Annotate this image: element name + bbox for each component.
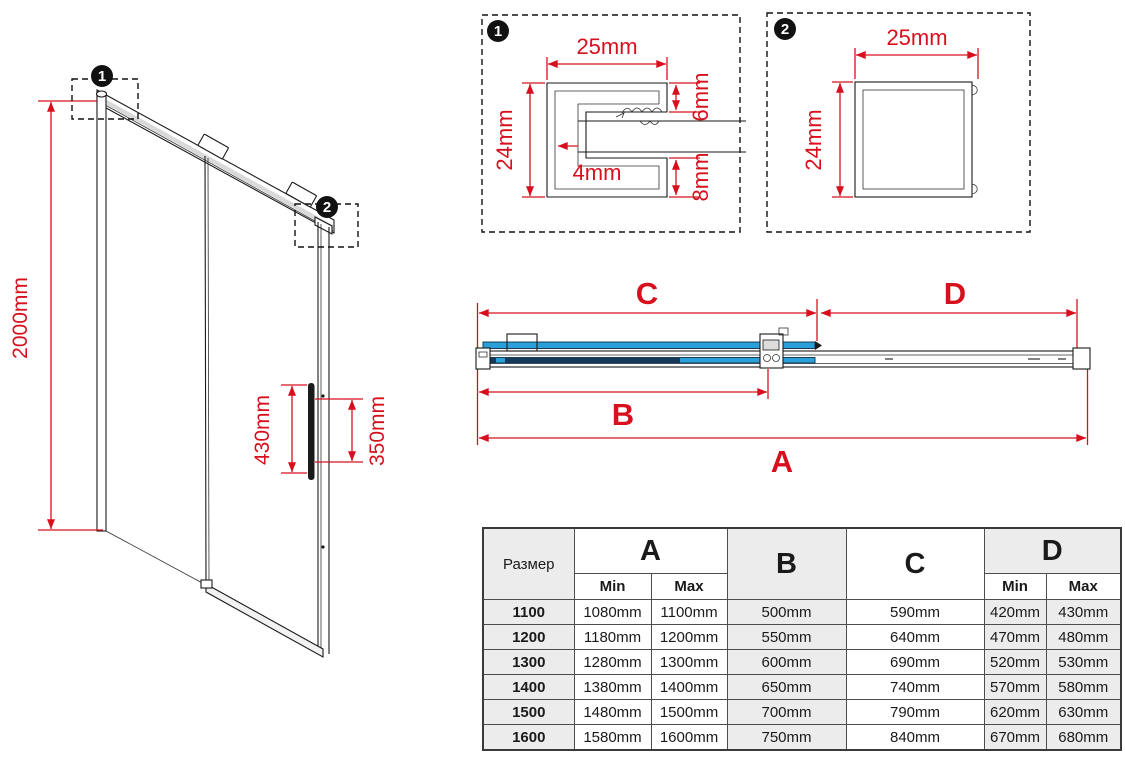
rail-plan-view: C D B	[476, 276, 1090, 479]
table-row: 1400 1380mm 1400mm 650mm 740mm 570mm 580…	[483, 675, 1121, 700]
table-cell: 1380mm	[574, 675, 651, 700]
table-cell: 1600mm	[651, 725, 727, 751]
table-cell: 470mm	[984, 625, 1046, 650]
rail-end-cap-left	[476, 348, 490, 369]
handle-holes-label: 350mm	[366, 396, 389, 466]
table-cell: 530mm	[1046, 650, 1121, 675]
table-cell: 640mm	[846, 625, 984, 650]
glass-gasket	[616, 108, 662, 125]
table-header-a-min: Min	[574, 574, 651, 600]
table-header-a: A	[574, 528, 727, 574]
table-cell: 700mm	[727, 700, 846, 725]
table-cell: 420mm	[984, 600, 1046, 625]
table-cell: 1500mm	[651, 700, 727, 725]
table-header-b: B	[727, 528, 846, 600]
callout-1-number: 1	[98, 68, 106, 85]
table-cell: 430mm	[1046, 600, 1121, 625]
dim-handle-length: 430mm	[251, 385, 307, 473]
table-row: 1500 1480mm 1500mm 700mm 790mm 620mm 630…	[483, 700, 1121, 725]
table-cell: 500mm	[727, 600, 846, 625]
table-cell: 1180mm	[574, 625, 651, 650]
table-cell: 750mm	[727, 725, 846, 751]
table-cell: 1500	[483, 700, 574, 725]
table-header-size: Размер	[483, 528, 574, 600]
plan-dim-c: C	[636, 276, 658, 311]
table-cell: 600mm	[727, 650, 846, 675]
table-cell: 740mm	[846, 675, 984, 700]
table-cell: 1200	[483, 625, 574, 650]
dim-d2-width: 25mm	[855, 25, 978, 79]
dim-d1-height: 24mm	[492, 83, 545, 197]
detail-1-badge: 1	[494, 23, 502, 40]
table-cell: 1200mm	[651, 625, 727, 650]
table-cell: 650mm	[727, 675, 846, 700]
d1-top-lip-label: 6mm	[688, 73, 713, 122]
plan-dim-d: D	[944, 276, 966, 311]
table-cell: 1300mm	[651, 650, 727, 675]
table-cell: 670mm	[984, 725, 1046, 751]
left-stile	[97, 95, 106, 531]
table-header-a-max: Max	[651, 574, 727, 600]
door-height-label: 2000mm	[9, 277, 32, 359]
table-cell: 550mm	[727, 625, 846, 650]
door-handle	[308, 383, 315, 480]
table-cell: 480mm	[1046, 625, 1121, 650]
plan-dim-a: A	[771, 444, 793, 479]
table-cell: 1400mm	[651, 675, 727, 700]
dim-d1-width: 25mm	[547, 34, 667, 80]
callout-2-number: 2	[323, 199, 331, 216]
handle-length-label: 430mm	[251, 395, 274, 465]
table-header-d-min: Min	[984, 574, 1046, 600]
table-cell: 1400	[483, 675, 574, 700]
d1-wall-label: 4mm	[573, 160, 622, 185]
dim-d1-bottom-lip: 8mm	[669, 153, 713, 202]
door-isometric-drawing: 2000mm 430mm 350mm 1 2	[9, 65, 389, 657]
table-cell: 1100	[483, 600, 574, 625]
table-header-d-max: Max	[1046, 574, 1121, 600]
detail-1-profile-section: 1 25mm 24mm 6mm	[482, 15, 746, 232]
table-cell: 1100mm	[651, 600, 727, 625]
detail-2-badge: 2	[781, 21, 789, 38]
table-cell: 1300	[483, 650, 574, 675]
dim-d1-top-lip: 6mm	[669, 73, 713, 122]
dim-handle-holes: 350mm	[315, 396, 389, 466]
table-row: 1200 1180mm 1200mm 550mm 640mm 470mm 480…	[483, 625, 1121, 650]
table-cell: 1600	[483, 725, 574, 751]
d1-height-label: 24mm	[492, 109, 517, 170]
dim-d2-height: 24mm	[801, 82, 853, 197]
table-cell: 840mm	[846, 725, 984, 751]
table-row: 1600 1580mm 1600mm 750mm 840mm 670mm 680…	[483, 725, 1121, 751]
d2-height-label: 24mm	[801, 109, 826, 170]
square-profile-outline	[855, 82, 972, 197]
size-table: Размер A B C D Min Max Min Max 1100 1080…	[482, 527, 1122, 751]
rail-end-cap-right	[1073, 348, 1090, 369]
table-cell: 1280mm	[574, 650, 651, 675]
table-cell: 520mm	[984, 650, 1046, 675]
table-cell: 1080mm	[574, 600, 651, 625]
plan-dim-b: B	[612, 397, 634, 432]
table-cell: 680mm	[1046, 725, 1121, 751]
table-cell: 1480mm	[574, 700, 651, 725]
bottom-rail	[206, 584, 323, 657]
table-header-c: C	[846, 528, 984, 600]
table-cell: 690mm	[846, 650, 984, 675]
technical-spec-sheet: 2000mm 430mm 350mm 1 2	[0, 0, 1125, 776]
d1-bottom-lip-label: 8mm	[688, 153, 713, 202]
detail-2-profile-section: 2 25mm 24mm	[767, 13, 1030, 232]
table-cell: 590mm	[846, 600, 984, 625]
table-cell: 790mm	[846, 700, 984, 725]
table-cell: 1580mm	[574, 725, 651, 751]
table-row: 1100 1080mm 1100mm 500mm 590mm 420mm 430…	[483, 600, 1121, 625]
table-header-d: D	[984, 528, 1121, 574]
d2-width-label: 25mm	[886, 25, 947, 50]
dim-door-height: 2000mm	[9, 101, 103, 530]
table-cell: 580mm	[1046, 675, 1121, 700]
table-cell: 630mm	[1046, 700, 1121, 725]
table-cell: 570mm	[984, 675, 1046, 700]
d1-width-label: 25mm	[576, 34, 637, 59]
table-row: 1300 1280mm 1300mm 600mm 690mm 520mm 530…	[483, 650, 1121, 675]
table-cell: 620mm	[984, 700, 1046, 725]
